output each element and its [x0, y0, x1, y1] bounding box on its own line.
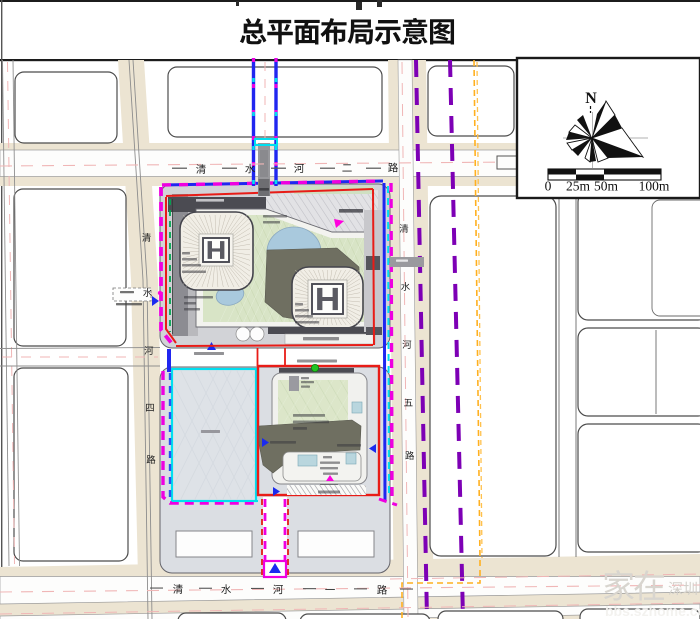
svg-text:0: 0 — [545, 179, 552, 194]
svg-text:bbs.szhome.com: bbs.szhome.com — [605, 603, 700, 619]
svg-text:N: N — [585, 90, 597, 107]
svg-text:50m: 50m — [594, 179, 619, 194]
svg-text:100m: 100m — [639, 179, 670, 194]
svg-text:25m: 25m — [566, 179, 591, 194]
